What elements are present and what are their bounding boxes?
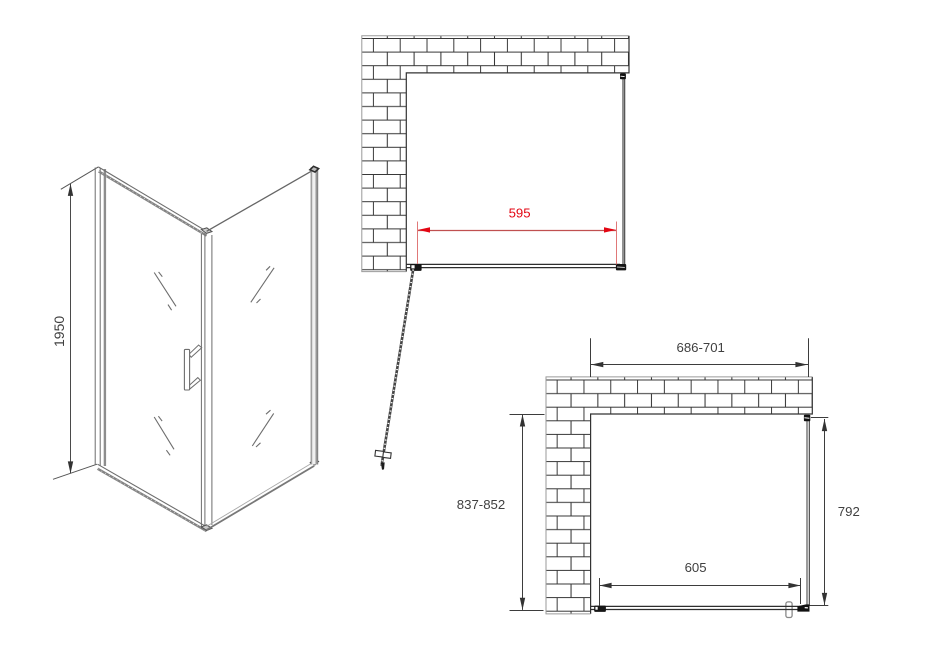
svg-text:605: 605 — [685, 560, 707, 575]
svg-text:595: 595 — [509, 206, 531, 221]
svg-text:837-852: 837-852 — [457, 497, 505, 512]
svg-text:686-701: 686-701 — [676, 340, 724, 355]
svg-text:1950: 1950 — [51, 316, 67, 347]
svg-text:792: 792 — [838, 504, 860, 519]
